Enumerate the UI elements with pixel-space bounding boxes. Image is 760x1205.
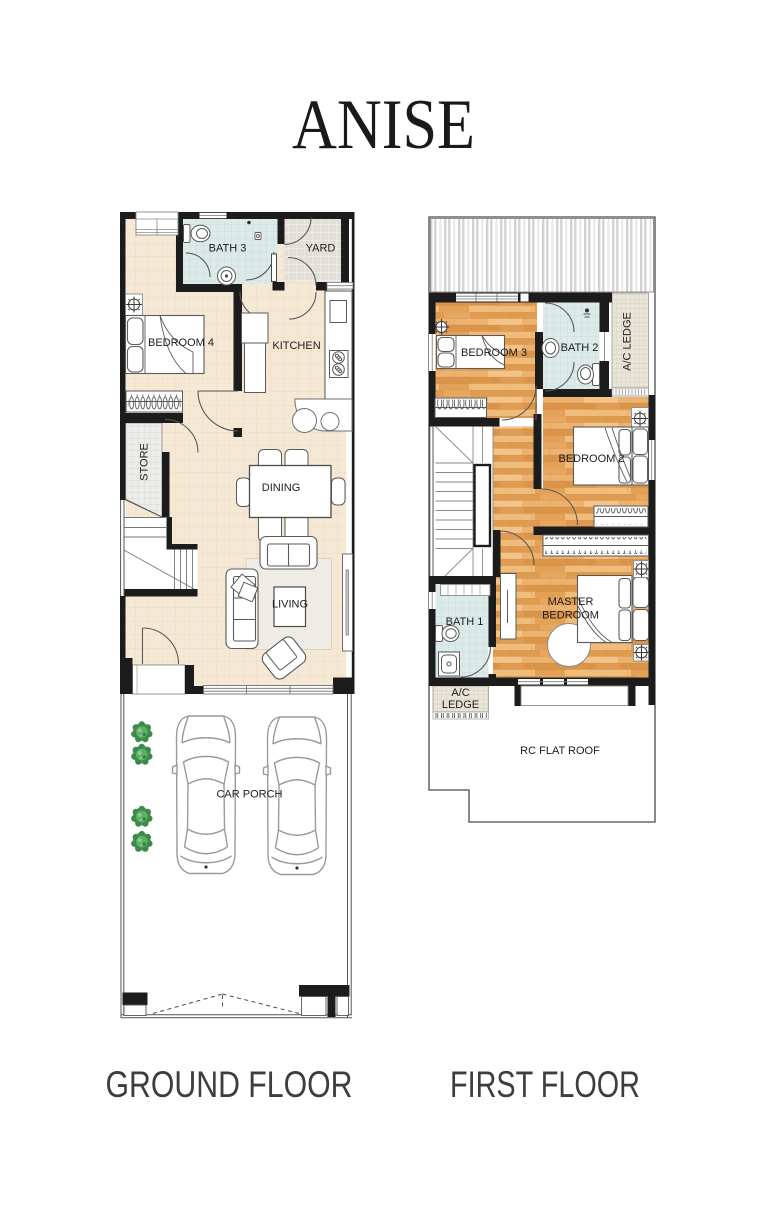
svg-text:YARD: YARD (306, 243, 336, 255)
svg-text:BATH 1: BATH 1 (446, 616, 484, 628)
svg-text:MASTER: MASTER (548, 596, 594, 608)
svg-text:BEDROOM 2: BEDROOM 2 (558, 453, 624, 465)
svg-text:LEDGE: LEDGE (442, 699, 479, 711)
svg-text:BATH 3: BATH 3 (209, 243, 247, 255)
svg-text:GROUND FLOOR: GROUND FLOOR (106, 1064, 353, 1105)
svg-text:BEDROOM 3: BEDROOM 3 (461, 347, 527, 359)
svg-text:A/C LEDGE: A/C LEDGE (622, 312, 634, 371)
svg-text:LIVING: LIVING (272, 599, 308, 611)
svg-text:A/C: A/C (451, 687, 469, 699)
svg-text:BEDROOM 4: BEDROOM 4 (148, 337, 214, 349)
svg-text:STORE: STORE (139, 443, 151, 481)
svg-text:CAR PORCH: CAR PORCH (216, 789, 282, 801)
svg-text:RC FLAT ROOF: RC FLAT ROOF (520, 745, 600, 757)
svg-text:ANISE: ANISE (292, 86, 475, 164)
svg-text:KITCHEN: KITCHEN (272, 340, 320, 352)
svg-text:FIRST FLOOR: FIRST FLOOR (450, 1064, 640, 1105)
svg-text:BEDROOM: BEDROOM (542, 610, 599, 622)
svg-text:DINING: DINING (262, 482, 301, 494)
svg-text:BATH 2: BATH 2 (561, 342, 599, 354)
